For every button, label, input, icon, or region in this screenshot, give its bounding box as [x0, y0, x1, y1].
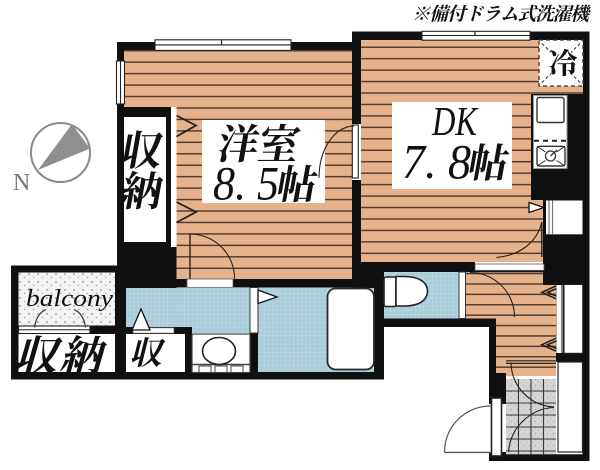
svg-text:8. 5: 8. 5: [213, 158, 279, 211]
svg-text:N: N: [13, 170, 30, 196]
svg-text:balcony: balcony: [26, 286, 113, 312]
svg-text:7. 8: 7. 8: [402, 134, 471, 189]
